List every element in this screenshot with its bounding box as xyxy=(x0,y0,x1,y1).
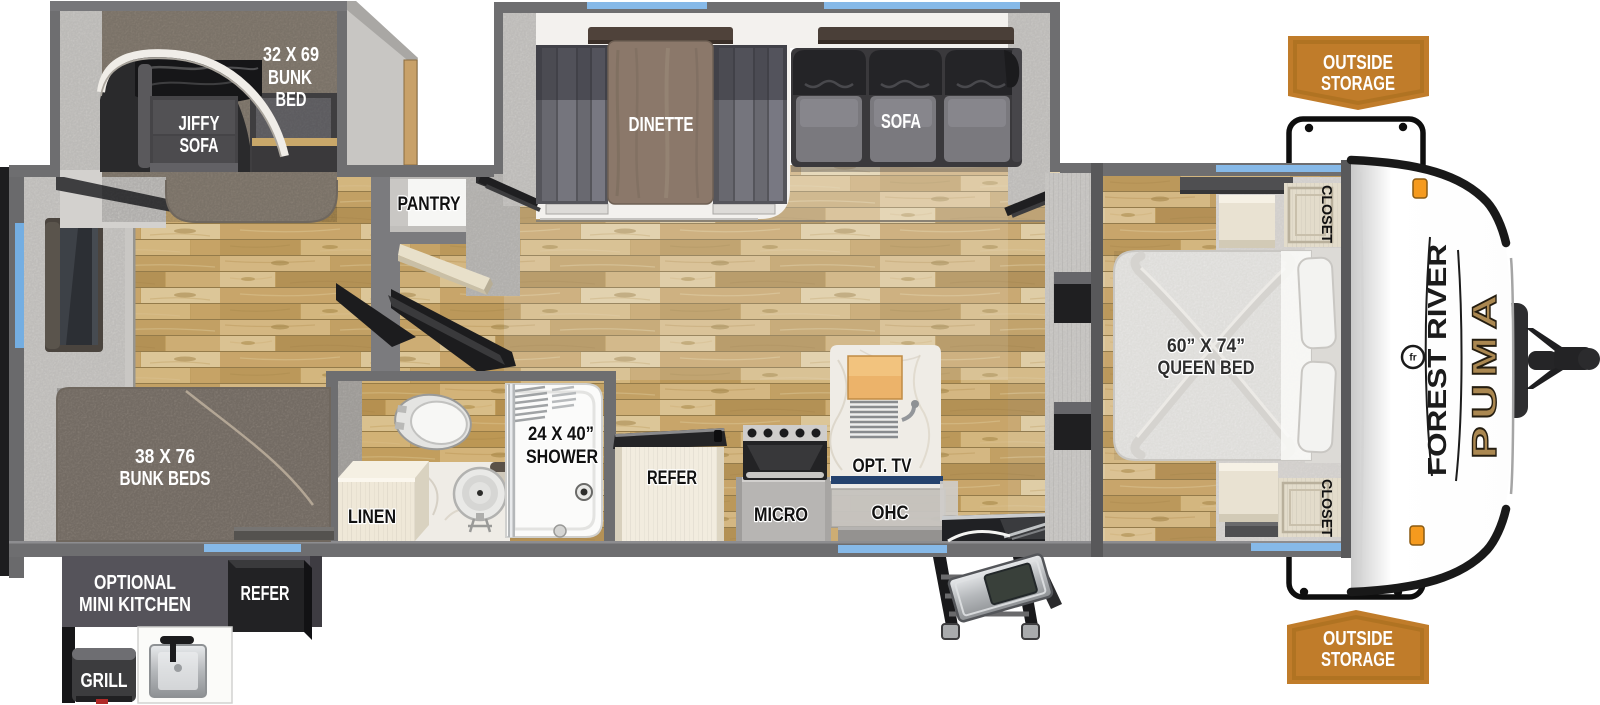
svg-text:SOFA: SOFA xyxy=(881,111,921,133)
svg-text:BUNK: BUNK xyxy=(268,67,312,89)
svg-text:60” X 74”: 60” X 74” xyxy=(1167,336,1245,357)
svg-text:QUEEN BED: QUEEN BED xyxy=(1158,358,1255,379)
svg-text:OPT. TV: OPT. TV xyxy=(853,456,912,477)
svg-text:REFER: REFER xyxy=(647,468,697,489)
svg-text:fr: fr xyxy=(1409,353,1416,364)
svg-text:STORAGE: STORAGE xyxy=(1321,649,1395,671)
svg-text:SOFA: SOFA xyxy=(180,135,219,157)
svg-text:MICRO: MICRO xyxy=(754,505,808,526)
svg-text:CLOSET: CLOSET xyxy=(1318,479,1335,537)
svg-text:GRILL: GRILL xyxy=(81,670,128,692)
svg-text:SHOWER: SHOWER xyxy=(526,447,598,468)
svg-text:OPTIONAL: OPTIONAL xyxy=(94,572,176,594)
svg-text:MINI KITCHEN: MINI KITCHEN xyxy=(79,594,191,616)
svg-text:BED: BED xyxy=(276,89,307,111)
svg-text:OHC: OHC xyxy=(872,503,909,524)
svg-text:JIFFY: JIFFY xyxy=(179,113,220,135)
svg-text:REFER: REFER xyxy=(241,583,290,605)
svg-text:BUNK BEDS: BUNK BEDS xyxy=(120,468,211,490)
svg-text:DINETTE: DINETTE xyxy=(629,114,694,136)
svg-text:OUTSIDE: OUTSIDE xyxy=(1323,52,1393,74)
svg-text:PANTRY: PANTRY xyxy=(398,194,461,215)
svg-text:FOREST RIVER: FOREST RIVER xyxy=(1422,244,1452,476)
svg-text:24 X 40”: 24 X 40” xyxy=(528,424,594,445)
svg-text:CLOSET: CLOSET xyxy=(1318,185,1335,243)
svg-text:OUTSIDE: OUTSIDE xyxy=(1323,628,1393,650)
svg-text:LINEN: LINEN xyxy=(348,507,396,528)
svg-text:38 X 76: 38 X 76 xyxy=(135,446,195,468)
svg-text:32 X 69: 32 X 69 xyxy=(263,44,319,66)
svg-text:PUMA: PUMA xyxy=(1466,287,1504,459)
svg-text:STORAGE: STORAGE xyxy=(1321,73,1395,95)
